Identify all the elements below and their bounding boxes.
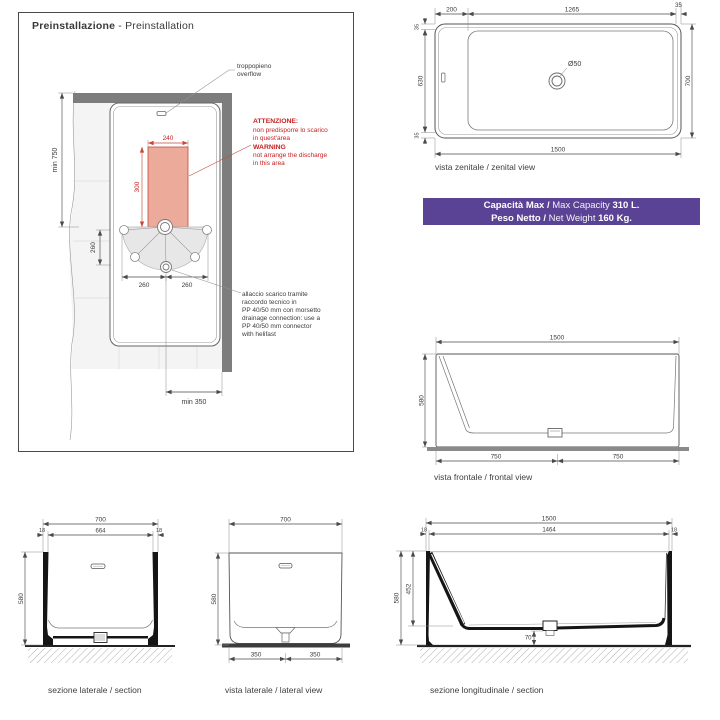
dim-b260l: 260	[139, 282, 150, 289]
longitudinal-section-drawing: 1500 18 1464 18 580 452 70 sezione longi…	[393, 515, 720, 710]
capacity-label-en: Max Capacity	[552, 200, 610, 211]
dim-min-front: min 350	[182, 399, 207, 406]
drain-note-6: with helifast	[241, 331, 276, 338]
dim-top-left: 200	[446, 7, 457, 14]
dim-bot-right: 750	[613, 454, 624, 461]
dim-top: 700	[280, 517, 291, 524]
dim-left: 580	[394, 592, 401, 603]
dim-left-mid: 630	[418, 75, 425, 86]
dim-edge-left: 18	[421, 528, 427, 534]
drain-note-3: PP 40/50 mm con morsetto	[242, 307, 321, 314]
longitudinal-caption: sezione longitudinale / section	[430, 685, 544, 695]
dim-inner: 664	[95, 529, 106, 535]
overflow-label-it: troppopieno	[237, 63, 272, 70]
drain	[548, 429, 562, 438]
drain	[549, 73, 565, 89]
dim-min-wall: min 750	[52, 147, 59, 172]
dim-rect-width: 240	[163, 135, 174, 142]
base-plinth	[427, 447, 689, 451]
bathtub-front-view	[427, 354, 689, 451]
capacity-banner: Capacità Max / Max Capacity 310 L. Peso …	[423, 198, 700, 225]
spec-sheet: Preinstallazione - Preinstallation	[0, 0, 720, 720]
warning-line-en1: not arrange the discharge	[253, 152, 327, 159]
dim-top: 1500	[550, 335, 565, 342]
drain-diameter-label: Ø50	[568, 61, 581, 68]
banner-line-weight: Peso Netto / Net Weight 160 Kg.	[423, 212, 700, 225]
section-lateral-drawing: 700 18 664 18 580 sezione laterale / sec…	[15, 515, 205, 710]
preinstallation-panel: Preinstallazione - Preinstallation	[18, 12, 354, 452]
dim-bot-right: 350	[310, 652, 321, 659]
frontal-view-drawing: 1500 580 750 750 vista frontale / fronta…	[420, 333, 720, 488]
dim-top: 700	[95, 517, 106, 524]
dim-left: 580	[211, 593, 218, 604]
drain-center	[158, 220, 173, 235]
preinstallation-drawing: 240 300 min 750 260 260 260	[19, 13, 353, 449]
overflow-slot	[279, 564, 292, 569]
dim-rect-height: 300	[134, 181, 141, 192]
weight-label-it: Peso Netto /	[491, 213, 546, 224]
weight-value: 160 Kg.	[598, 213, 632, 224]
drain	[94, 633, 107, 643]
dim-inner: 1464	[542, 528, 556, 534]
frontal-caption: vista frontale / frontal view	[434, 472, 533, 482]
dim-left: 580	[419, 395, 426, 406]
dim-edge-right: 18	[671, 528, 677, 534]
bathtub-top-view: Ø50	[435, 24, 681, 138]
drain-note-5: PP 40/50 mm connector	[242, 323, 312, 330]
overflow-label-en: overflow	[237, 71, 262, 78]
dim-edge-left: 18	[39, 528, 45, 534]
dim-v260: 260	[90, 242, 97, 253]
capacity-value: 310 L.	[612, 200, 639, 211]
weight-label-en: Net Weight	[549, 213, 596, 224]
base-plinth	[222, 644, 350, 648]
dim-edge-right: 18	[156, 528, 162, 534]
capacity-label-it: Capacità Max /	[484, 200, 550, 211]
dim-left-top: 35	[415, 24, 421, 30]
overflow-slot	[91, 564, 105, 569]
dim-top-right: 35	[675, 3, 682, 9]
dim-top-mid: 1265	[565, 7, 580, 14]
dim-depth: 452	[406, 583, 413, 594]
dim-bot-left: 750	[491, 454, 502, 461]
section-lateral-dims: 700 18 664 18 580	[18, 517, 164, 646]
dim-top: 1500	[542, 516, 557, 523]
zenital-caption: vista zenitale / zenital view	[435, 162, 536, 172]
lateral-caption: vista laterale / lateral view	[225, 685, 323, 695]
drain-note-1: allaccio scarico tramite	[242, 291, 308, 298]
bathtub-side-view	[222, 553, 350, 648]
warning-line-it1: non predisporre lo scarico	[253, 127, 328, 134]
banner-line-capacity: Capacità Max / Max Capacity 310 L.	[423, 199, 700, 212]
warning-head-en: WARNING	[253, 144, 286, 151]
dim-bottom: 1500	[551, 147, 566, 154]
dim-bot-left: 350	[251, 652, 262, 659]
bathtub-long-section	[417, 551, 691, 663]
overflow-slot	[157, 112, 166, 116]
drain-outlet	[161, 262, 172, 273]
warning-line-en2: in this area	[253, 160, 285, 167]
bathtub-section	[25, 552, 175, 663]
ground	[417, 646, 691, 663]
drain-note-2: raccordo tecnico in	[242, 299, 297, 306]
dim-left-bot: 35	[415, 132, 421, 138]
ground	[25, 646, 175, 663]
drain	[543, 621, 557, 636]
zenital-view-drawing: Ø50 200 1265 35 35 630 35	[400, 2, 715, 178]
dim-left: 580	[18, 593, 25, 604]
overflow-slot	[442, 73, 446, 82]
dim-drain-height: 70	[525, 636, 532, 642]
section-lateral-caption: sezione laterale / section	[48, 685, 142, 695]
warning-head-it: ATTENZIONE:	[253, 118, 298, 125]
warning-line-it2: in quest'area	[253, 135, 290, 142]
dim-b260r: 260	[182, 282, 193, 289]
lateral-view-drawing: 700 580 350 350 vista laterale / lateral…	[210, 515, 370, 710]
dim-right: 700	[685, 75, 692, 86]
discharge-exclusion-zone	[148, 147, 188, 227]
drain-note-4: drainage connection: use a	[242, 315, 320, 322]
